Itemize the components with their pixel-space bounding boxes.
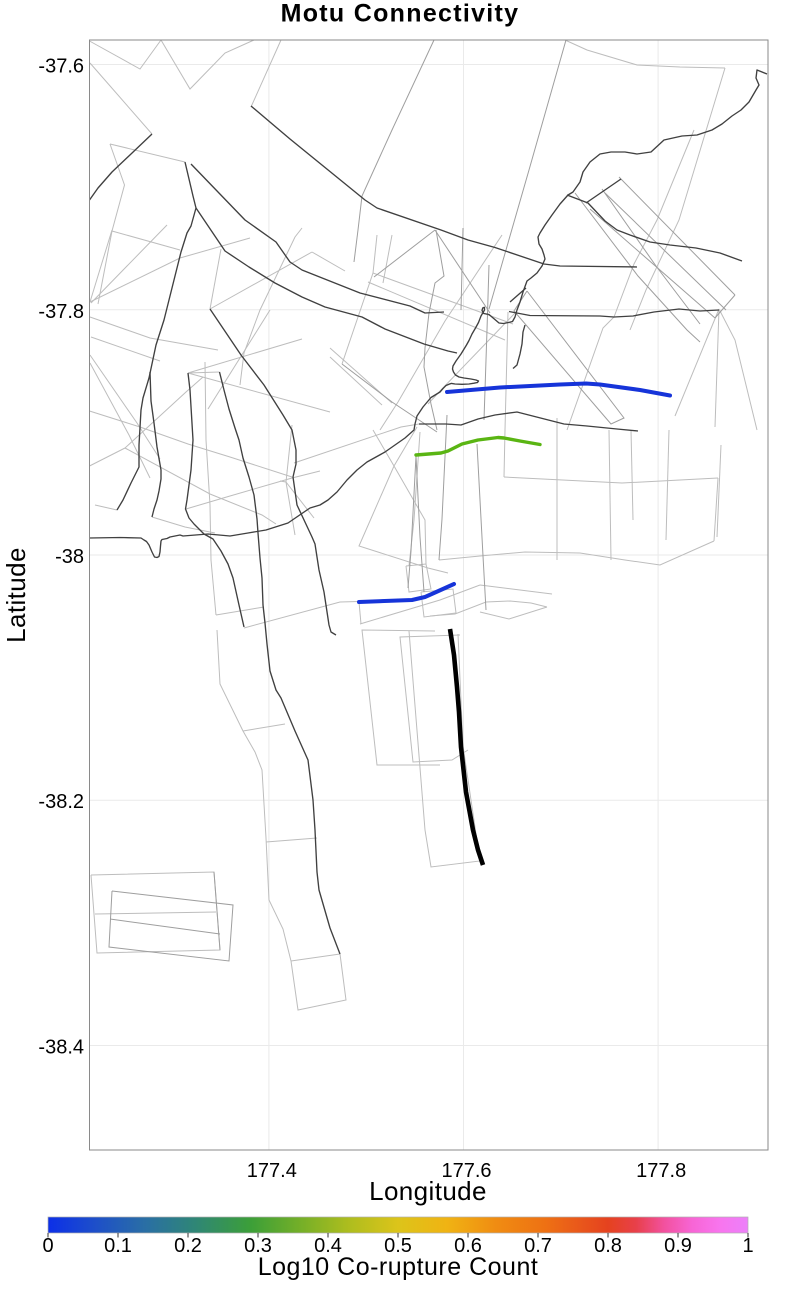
svg-text:Latitude: Latitude [1,547,31,643]
svg-text:0.1: 0.1 [104,1235,132,1257]
svg-text:-38: -38 [55,546,84,568]
svg-text:-38.2: -38.2 [38,791,84,813]
svg-text:0.2: 0.2 [174,1235,202,1257]
svg-text:Longitude: Longitude [369,1176,487,1206]
svg-text:-37.6: -37.6 [38,56,84,78]
svg-text:177.4: 177.4 [247,1160,297,1182]
svg-text:0.9: 0.9 [664,1235,692,1257]
svg-text:Log10 Co-rupture Count: Log10 Co-rupture Count [258,1253,539,1281]
svg-text:0: 0 [42,1235,53,1257]
svg-text:-38.4: -38.4 [38,1037,84,1059]
svg-text:0.8: 0.8 [594,1235,622,1257]
svg-text:1: 1 [742,1235,753,1257]
svg-text:177.8: 177.8 [636,1160,686,1182]
svg-text:Motu Connectivity: Motu Connectivity [281,0,520,28]
svg-text:-37.8: -37.8 [38,301,84,323]
